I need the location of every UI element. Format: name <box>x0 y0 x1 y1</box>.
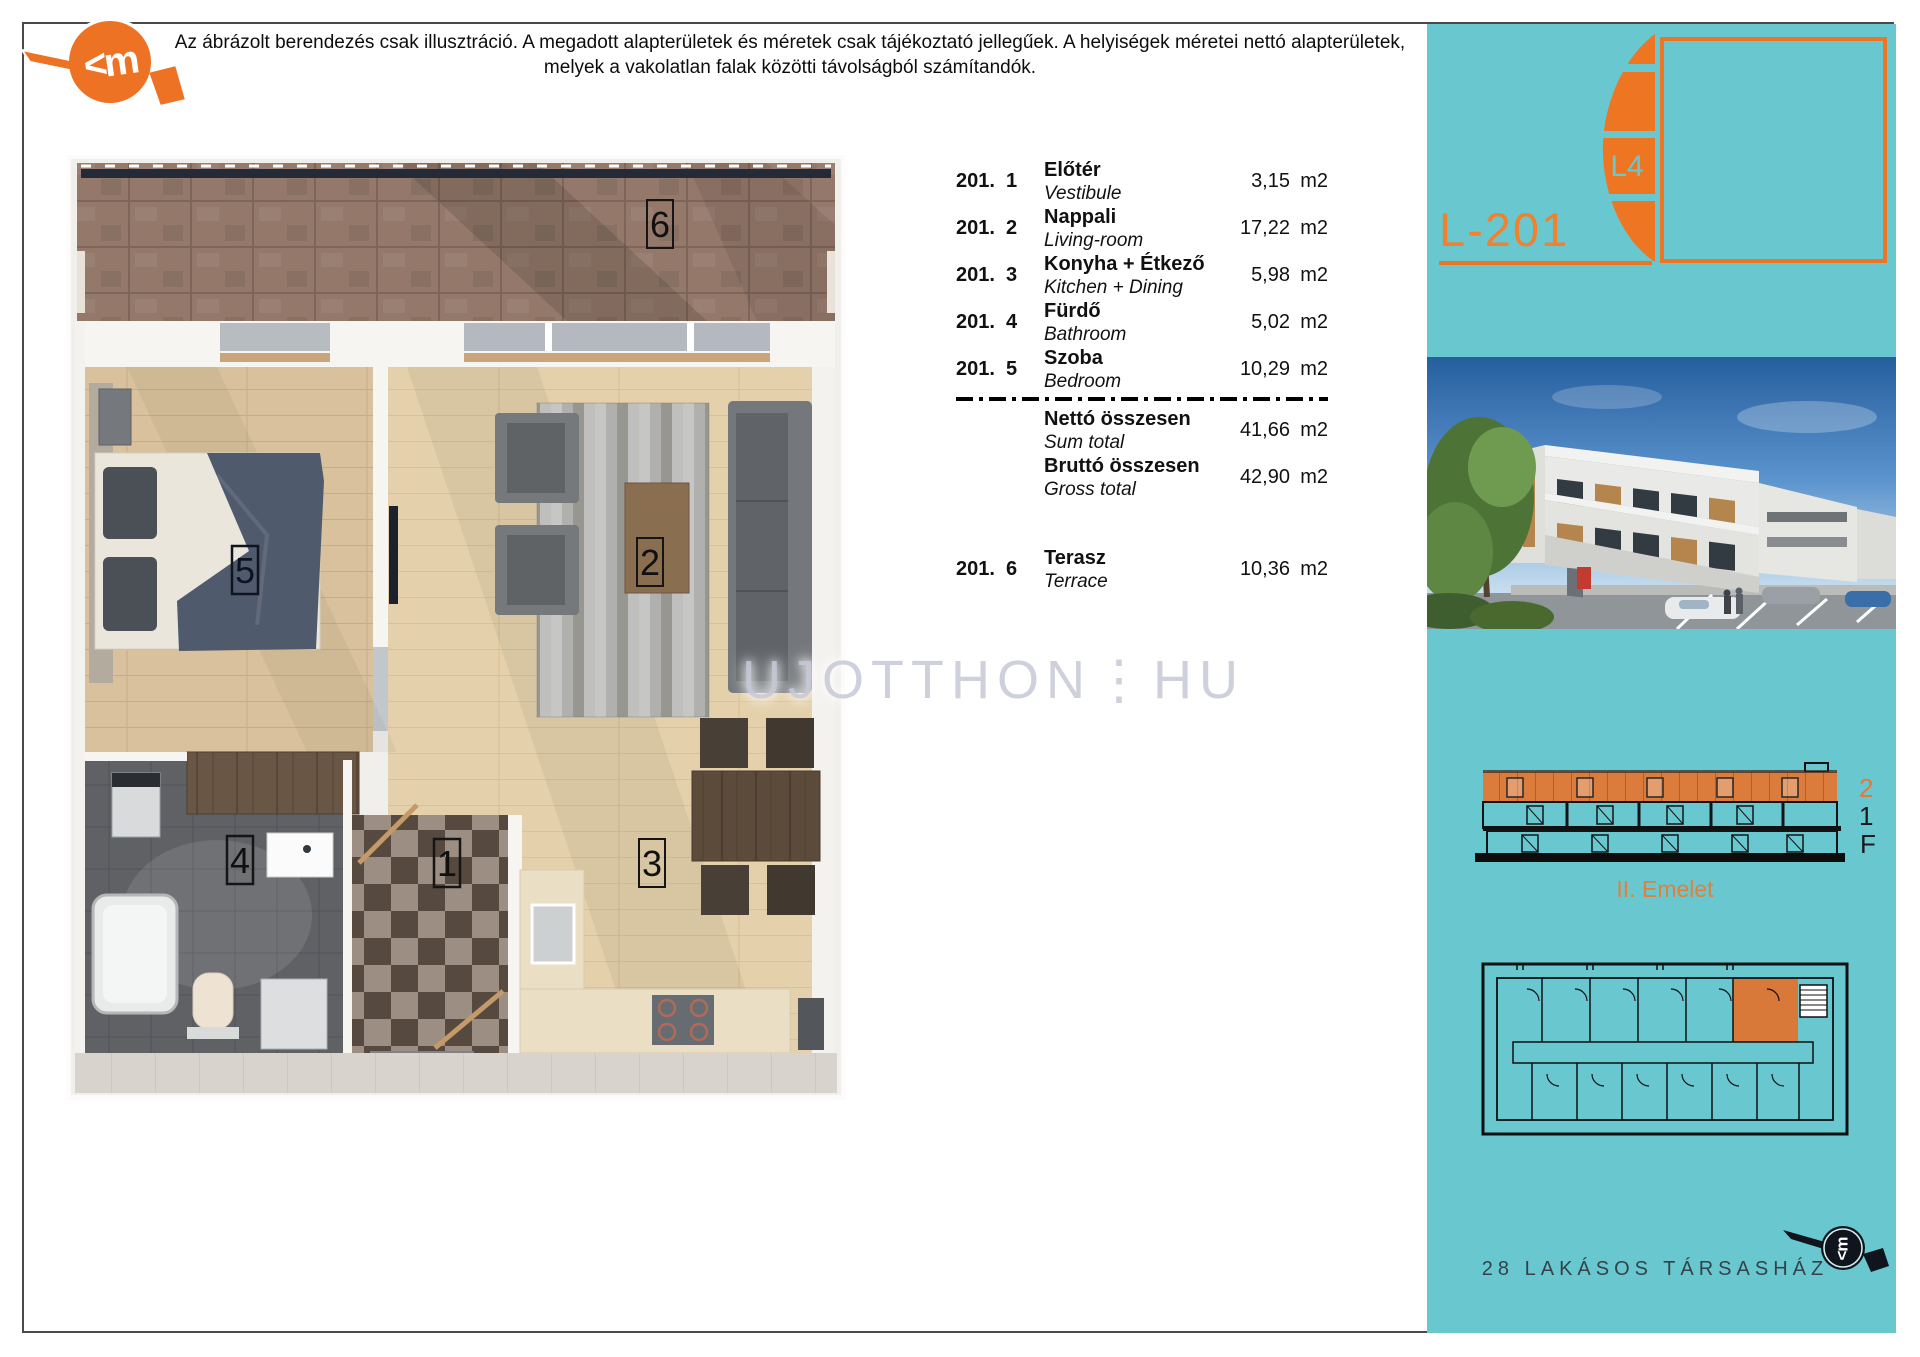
wardrobe <box>187 752 359 814</box>
sail-icon: L4 <box>1587 30 1662 270</box>
row-area: 10,29 <box>1224 358 1290 381</box>
label-kitchen: 3 <box>642 843 662 884</box>
table-row: 201. 1 Előtér Vestibule 3,15 m2 <box>956 158 1328 205</box>
row-name-hu: Szoba <box>1044 347 1224 370</box>
disclaimer: Az ábrázolt berendezés csak illusztráció… <box>160 30 1420 80</box>
disclaimer-line-2: melyek a vakolatlan falak közötti távols… <box>160 55 1420 80</box>
table-total-row: Bruttó összesen Gross total 42,90 m2 <box>956 454 1328 501</box>
row-name-hu: Terasz <box>1044 547 1224 570</box>
total-sqm: m2 <box>1290 466 1328 489</box>
row-area: 17,22 <box>1224 217 1290 240</box>
total-name-hu: Bruttó összesen <box>1044 455 1224 478</box>
dining-table <box>692 771 820 861</box>
label-living: 2 <box>640 542 660 583</box>
section-label-f: F <box>1860 829 1876 859</box>
shower-tray <box>261 979 327 1049</box>
kitchen-sink <box>532 905 574 963</box>
total-name-en: Sum total <box>1044 431 1224 454</box>
km-logo-mark: <m <box>1832 1237 1851 1261</box>
total-area: 42,90 <box>1224 466 1290 489</box>
pillow <box>103 467 157 539</box>
km-logo-icon: <m <box>1783 1208 1893 1298</box>
row-no: 5 <box>1006 358 1034 381</box>
row-no: 2 <box>1006 217 1034 240</box>
row-name-hu: Fürdő <box>1044 300 1224 323</box>
row-name-en: Bedroom <box>1044 370 1224 393</box>
disclaimer-line-1: Az ábrázolt berendezés csak illusztráció… <box>160 30 1420 55</box>
armchair <box>495 525 579 615</box>
row-name-en: Kitchen + Dining <box>1044 276 1224 299</box>
stairwell <box>1800 985 1827 1017</box>
building-sail-logo: L4 <box>1587 30 1662 275</box>
label-terrace: 6 <box>650 204 670 245</box>
row-no: 6 <box>1006 558 1034 581</box>
building-photo <box>1427 357 1896 634</box>
row-unit: 201. <box>956 311 1006 334</box>
row-unit: 201. <box>956 217 1006 240</box>
row-name-hu: Nappali <box>1044 206 1224 229</box>
corridor <box>1513 1042 1813 1063</box>
building-section-svg: 2 1 F II. Emelet <box>1427 739 1896 914</box>
section-floor-ground <box>1487 831 1837 855</box>
label-bedroom: 5 <box>235 550 255 591</box>
row-area: 5,02 <box>1224 311 1290 334</box>
section-caption: II. Emelet <box>1616 876 1714 902</box>
row-sqm: m2 <box>1290 264 1328 287</box>
sidebar: L-201 L4 <box>1427 24 1896 1333</box>
pillow <box>103 557 157 631</box>
row-name-en: Vestibule <box>1044 182 1224 205</box>
washbasin <box>267 833 333 877</box>
total-name-hu: Nettó összesen <box>1044 408 1224 431</box>
table-row: 201. 4 Fürdő Bathroom 5,02 m2 <box>956 299 1328 346</box>
fridge <box>798 998 824 1050</box>
row-area: 3,15 <box>1224 170 1290 193</box>
building-code: L4 <box>1610 150 1643 183</box>
unit-code: L-201 <box>1439 202 1569 257</box>
room-table: 201. 1 Előtér Vestibule 3,15 m2 201. 2 N… <box>956 158 1328 593</box>
row-sqm: m2 <box>1290 558 1328 581</box>
row-no: 4 <box>1006 311 1034 334</box>
tv <box>389 506 398 604</box>
room-terrace <box>77 163 835 321</box>
total-area: 41,66 <box>1224 419 1290 442</box>
chair <box>700 718 748 768</box>
row-sqm: m2 <box>1290 358 1328 381</box>
row-name-en: Living-room <box>1044 229 1224 252</box>
total-name-en: Gross total <box>1044 478 1224 501</box>
floorplan-image: 6 5 2 4 1 3 <box>67 155 845 1100</box>
section-floor-1 <box>1483 802 1837 828</box>
row-sqm: m2 <box>1290 170 1328 193</box>
row-area: 10,36 <box>1224 558 1290 581</box>
building-section: 2 1 F II. Emelet <box>1427 739 1896 919</box>
table-row: 201. 3 Konyha + Étkező Kitchen + Dining … <box>956 252 1328 299</box>
section-label-1: 1 <box>1859 801 1873 831</box>
row-sqm: m2 <box>1290 217 1328 240</box>
orange-outline-box <box>1660 37 1887 263</box>
project-name: 28 LAKÁSOS TÁRSASHÁZ <box>1477 1258 1833 1281</box>
label-hall: 1 <box>437 843 457 884</box>
row-name-en: Terrace <box>1044 570 1224 593</box>
terrace-wall <box>77 321 835 367</box>
km-footer-logo: <m <box>1783 1208 1893 1303</box>
key-floorplan <box>1427 959 1896 1149</box>
floorplan-svg: 6 5 2 4 1 3 <box>67 155 845 1100</box>
row-unit: 201. <box>956 358 1006 381</box>
table-row: 201. 2 Nappali Living-room 17,22 m2 <box>956 205 1328 252</box>
row-sqm: m2 <box>1290 311 1328 334</box>
terrace-door-bedroom <box>220 323 330 351</box>
watermark: UJOTTHON⋮HU <box>742 648 1245 711</box>
chair <box>767 865 815 915</box>
row-name-en: Bathroom <box>1044 323 1224 346</box>
row-area: 5,98 <box>1224 264 1290 287</box>
chair <box>766 718 814 768</box>
row-name-hu: Előtér <box>1044 159 1224 182</box>
row-unit: 201. <box>956 170 1006 193</box>
armchair <box>495 413 579 503</box>
terrace-door-living <box>464 323 770 351</box>
row-unit: 201. <box>956 558 1006 581</box>
table-total-row: Nettó összesen Sum total 41,66 m2 <box>956 407 1328 454</box>
chair <box>701 865 749 915</box>
table-row: 201. 5 Szoba Bedroom 10,29 m2 <box>956 346 1328 393</box>
row-unit: 201. <box>956 264 1006 287</box>
row-no: 3 <box>1006 264 1034 287</box>
highlighted-unit <box>1733 979 1798 1042</box>
brand-mark: <m <box>81 37 141 88</box>
table-row-terrace: 201. 6 Terasz Terrace 10,36 m2 <box>956 546 1328 593</box>
section-label-2: 2 <box>1859 773 1873 803</box>
key-floorplan-svg <box>1427 959 1896 1144</box>
label-bath: 4 <box>230 840 250 881</box>
playground <box>1577 567 1591 589</box>
row-name-hu: Konyha + Étkező <box>1044 253 1224 276</box>
total-sqm: m2 <box>1290 419 1328 442</box>
bottom-strip <box>75 1053 837 1093</box>
table-divider <box>956 397 1328 401</box>
section-floor-2 <box>1483 770 1837 802</box>
terrace-railing <box>81 169 831 178</box>
toilet <box>193 973 233 1029</box>
row-no: 1 <box>1006 170 1034 193</box>
building-photo-svg <box>1427 357 1896 629</box>
